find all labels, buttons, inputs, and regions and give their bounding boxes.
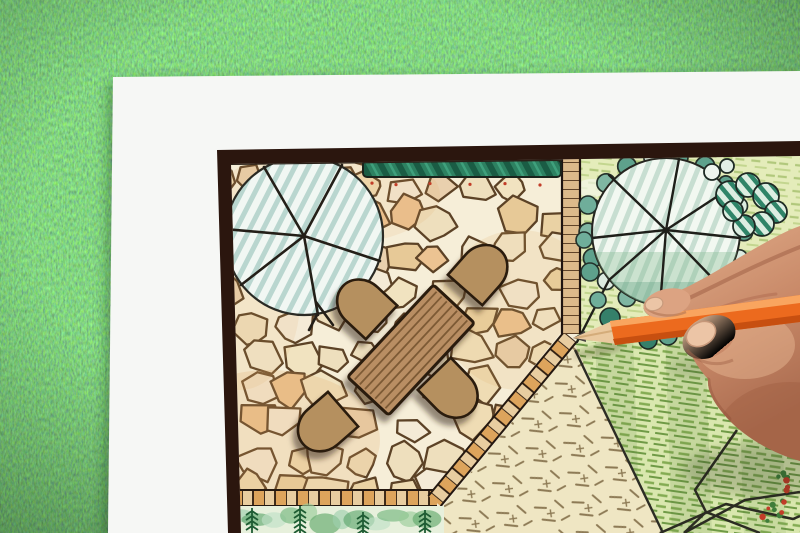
red-speck [428,182,431,185]
red-speck [468,183,471,186]
plant-dot [779,510,784,515]
scene-canvas [0,0,800,533]
plant-dot [765,519,769,523]
paver-course-horizontal [231,490,437,506]
plant-dot [772,507,777,512]
red-speck [503,182,506,185]
plant-dot [759,514,765,520]
red-speck [370,182,373,185]
plant-dot [766,507,770,511]
photo-scene [0,0,800,533]
red-speck [538,183,541,186]
plant-dot [770,502,776,508]
red-speck [394,183,397,186]
plant-dot [781,499,787,505]
planting-bed [226,503,444,533]
